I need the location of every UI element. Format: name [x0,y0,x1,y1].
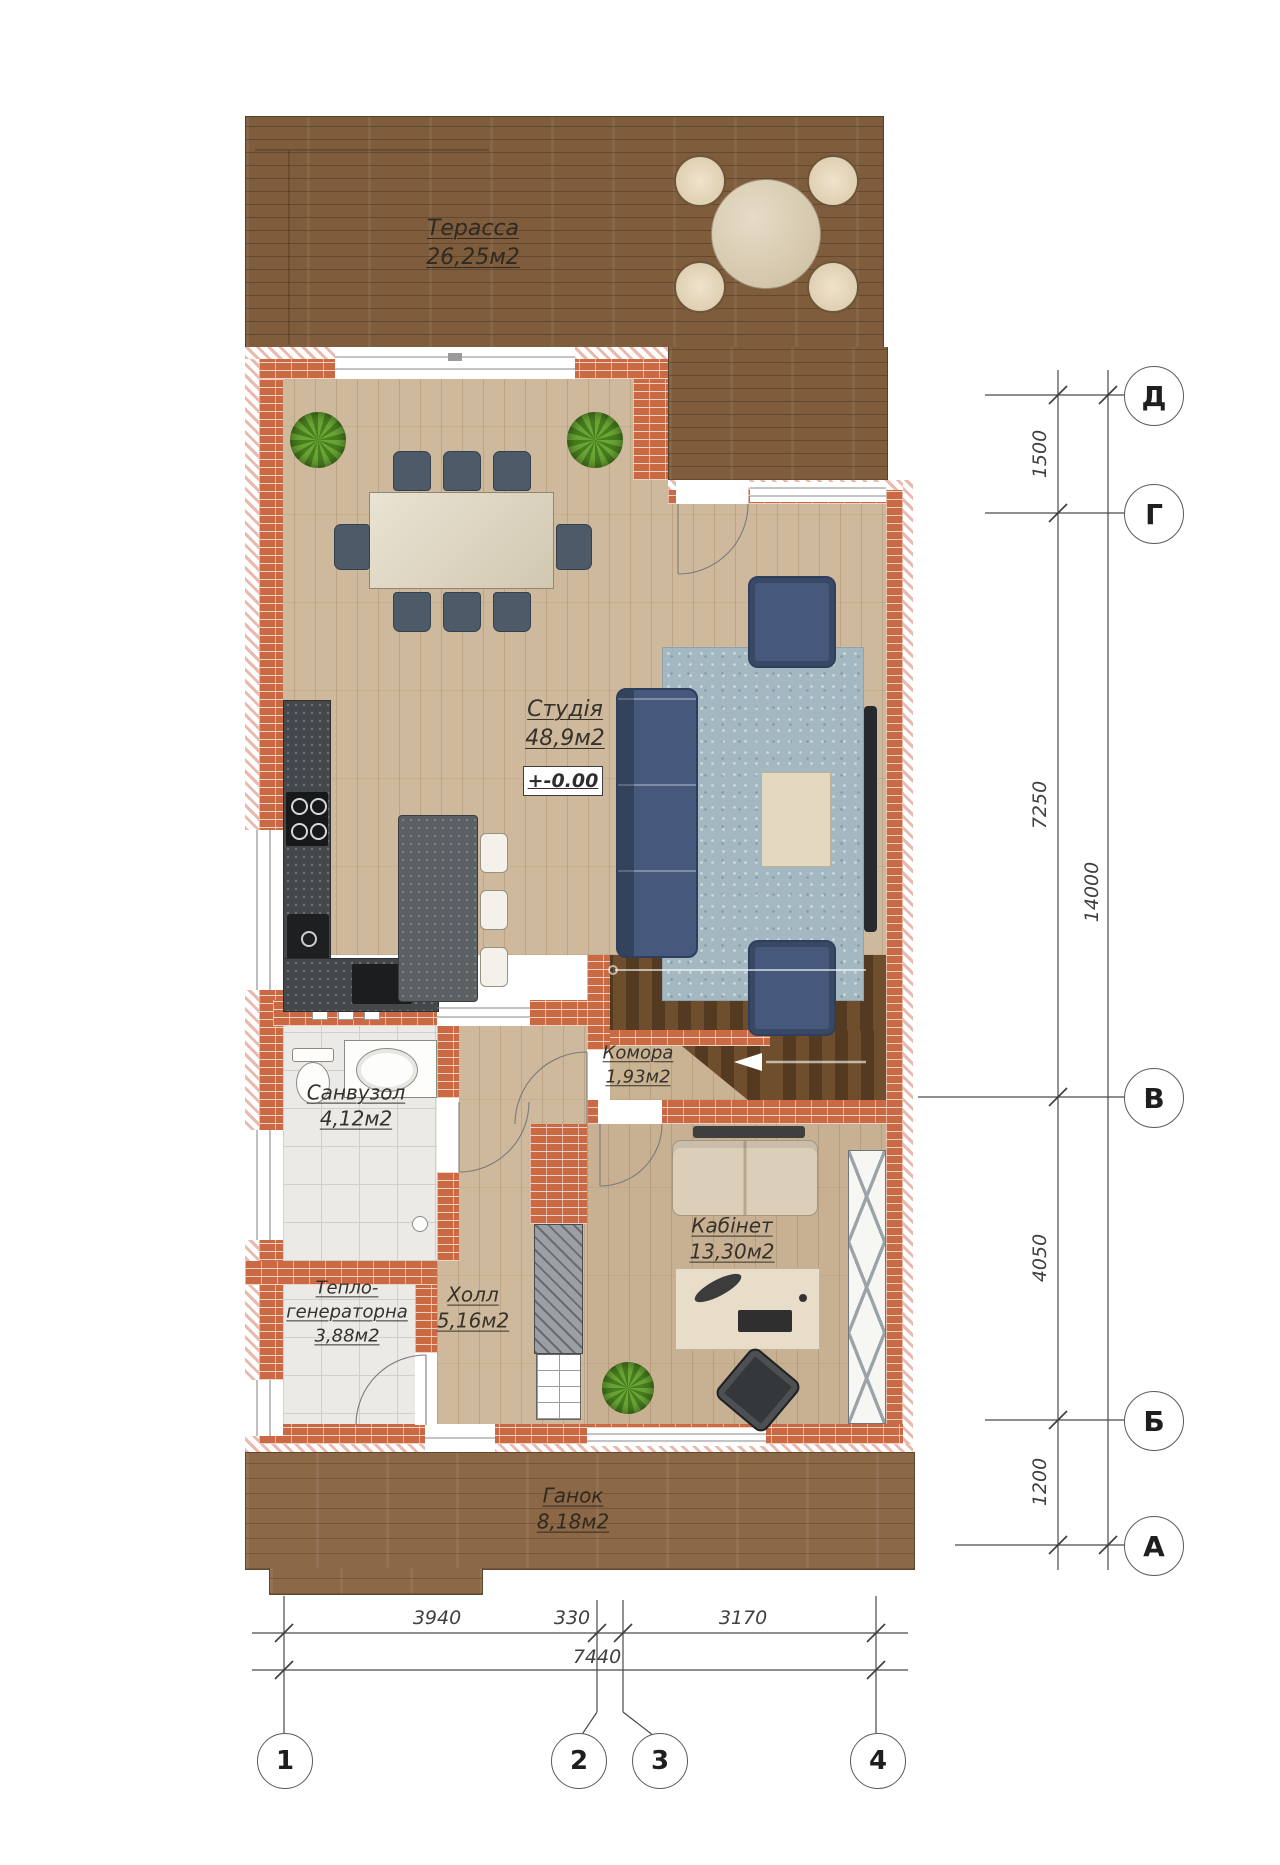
axis-letter: А [1143,1530,1165,1563]
dim-bottom-3940: 3940 [413,1607,461,1629]
axis-circle-b: Б [1124,1391,1184,1451]
axis-circle-a: А [1124,1516,1184,1576]
axis-circle-3: 3 [632,1733,688,1789]
axis-circle-4: 4 [850,1733,906,1789]
axis-letter: Б [1143,1405,1164,1438]
axis-letter: Д [1142,380,1167,413]
dim-right-total-14000: 14000 [1081,862,1103,922]
axis-number: 2 [570,1746,588,1776]
dim-right-1200: 1200 [1029,1458,1051,1506]
axis-number: 1 [276,1746,294,1776]
dim-bottom-total-7440: 7440 [573,1646,621,1668]
axis-letter: В [1143,1082,1164,1115]
dim-right-1500: 1500 [1029,430,1051,478]
dim-bottom-3170: 3170 [719,1607,767,1629]
axis-circle-d: Д [1124,366,1184,426]
dim-bottom-330: 330 [554,1607,590,1629]
dim-right-4050: 4050 [1029,1234,1051,1282]
axis-circle-2: 2 [551,1733,607,1789]
axis-number: 3 [651,1746,669,1776]
axis-circle-g: Г [1124,484,1184,544]
dim-right-7250: 7250 [1029,781,1051,829]
annotation-layer [0,0,1280,1865]
axis-letter: Г [1145,498,1163,531]
axis-circle-1: 1 [257,1733,313,1789]
axis-circle-v: В [1124,1068,1184,1128]
axis-number: 4 [869,1746,887,1776]
floor-plan-canvas: Терасса 26,25м2 Студія 48,9м2 +-0.00 Ком… [0,0,1280,1865]
